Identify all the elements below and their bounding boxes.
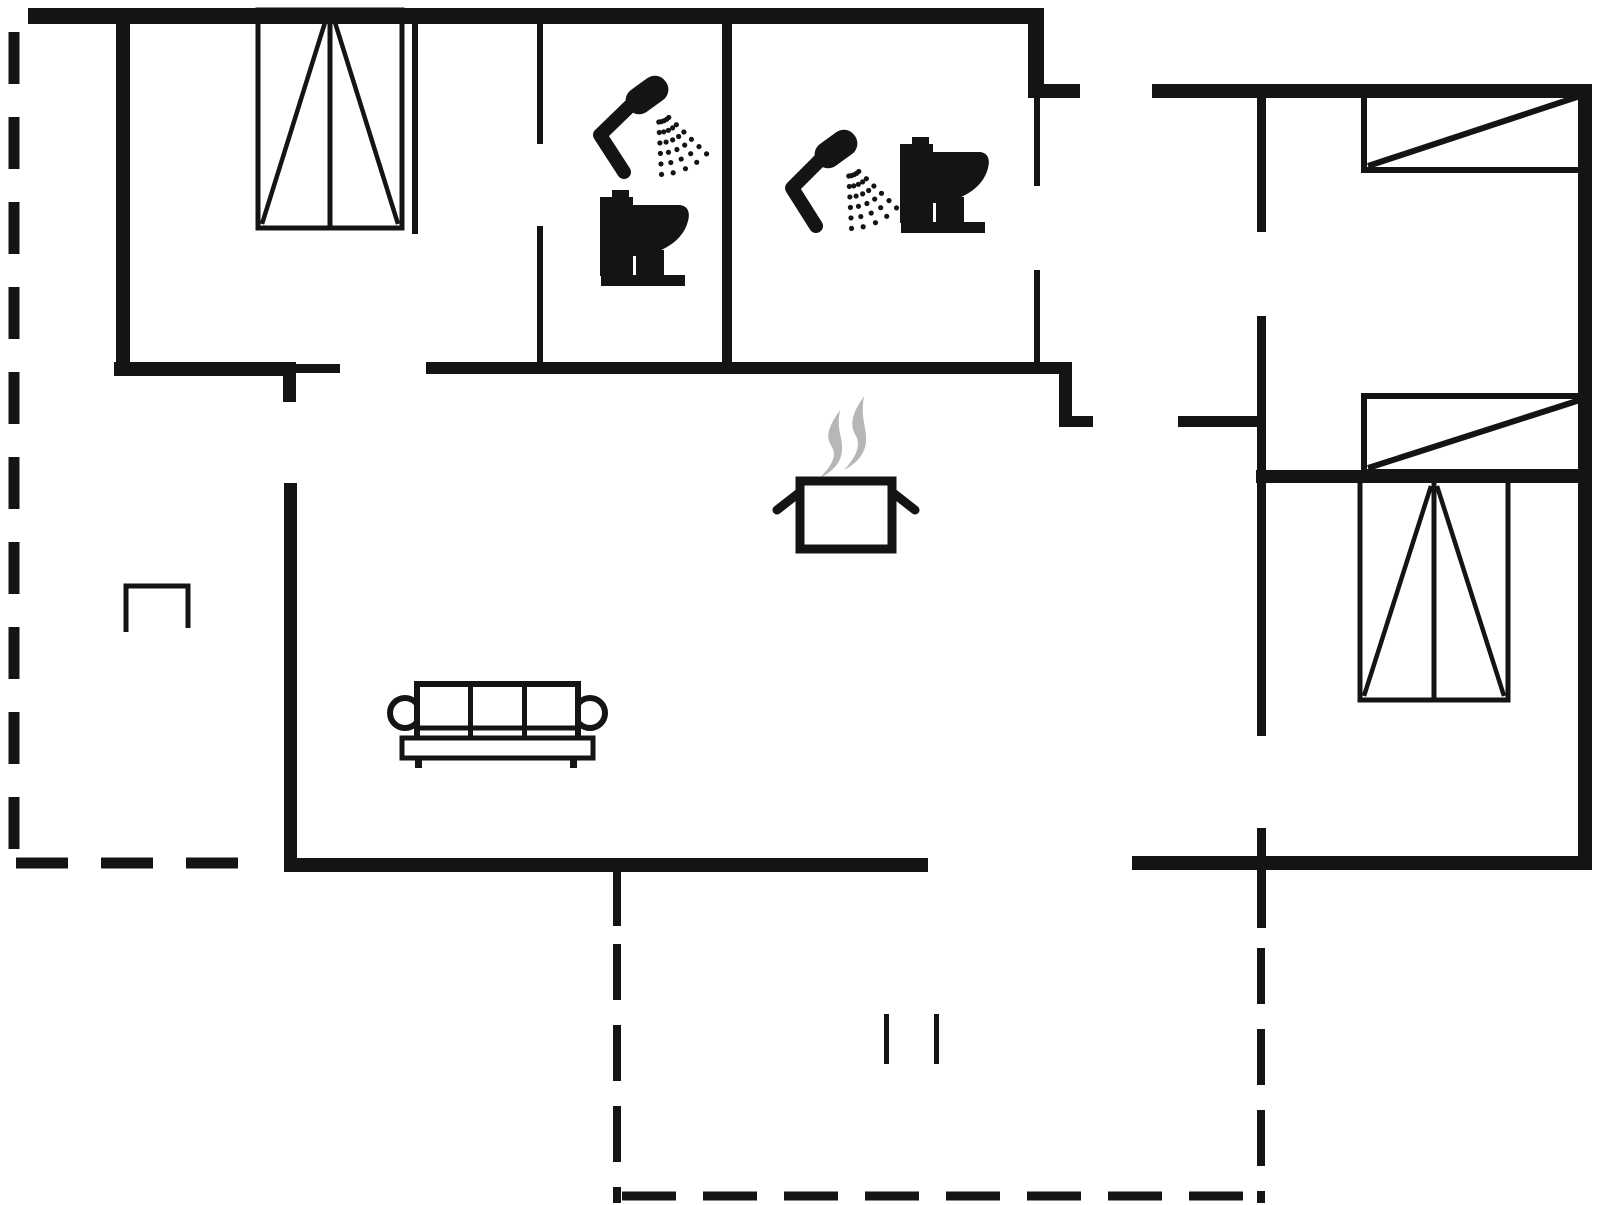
step-wall-jamb [1059,416,1093,427]
steam-icon [820,410,842,478]
shower-spray-dot [657,130,662,135]
shower-spray-dot [873,220,878,225]
door-mark [934,1014,939,1064]
shower-spray-dot [894,205,899,210]
shower-spray-dot [846,173,851,178]
floor-plan-canvas [0,0,1606,1205]
bathroom1-left-wall-lower [537,226,543,364]
bedroom1-right-wall [412,8,418,234]
hall-wall-upper [1257,92,1266,232]
toilet-base [901,222,985,233]
shower-spray-dot [853,193,858,198]
shower-spray-dot [848,215,853,220]
toilet-pedestal [636,250,664,278]
shower-spray-dot [884,214,889,219]
shower-spray-dot [861,224,866,229]
shower-spray-dot [864,201,869,206]
shower-spray-dot [849,226,854,231]
wardrobe-right-diagonal [333,16,398,224]
toilet-bathroom2-icon [900,137,989,233]
shower-spray-dot [871,183,876,188]
wardrobe-bedroom3-icon [1360,480,1508,700]
terrace-stub-wall [613,866,621,926]
shower-spray-dot [681,129,686,134]
living-bottom-wall [284,858,928,872]
shower-spray-dot [872,196,877,201]
wardrobe-left-diagonal [1364,486,1431,696]
shower-spray-dot [869,210,874,215]
shower-spray-dot [670,137,675,142]
shower-spray-dot [696,144,701,149]
bathroom-divider-wall [722,8,732,364]
shower-spray-dot [659,172,664,177]
shower-spray-dot [694,160,699,165]
shower-spray-dot [682,142,687,147]
toilet-tank [900,144,933,223]
sofa-leg [570,758,577,768]
shower-spray-dot [858,214,863,219]
side-table-icon [126,586,188,632]
entry-door-jamb [1028,84,1080,98]
hall-wall-middle [1257,316,1266,736]
shower-spray-dot [848,205,853,210]
bedroom1-bottom-wall [114,362,296,376]
shower-spray-dot [847,184,852,189]
pot-body [800,481,892,549]
shower-spray-dot [688,151,693,156]
shower-spray-dot [676,134,681,139]
toilet-tank [600,197,633,276]
hall-wall-lower [1257,828,1266,928]
shower-spray-dot [658,161,663,166]
toilet-bowl [933,152,989,203]
shower-bathroom1-icon [600,71,709,177]
wardrobe-left-diagonal [262,16,327,224]
wardrobes [258,10,1508,700]
right-wing-bottom-wall [1132,856,1592,870]
shower-spray-dot [679,156,684,161]
shower-spray-dot [666,150,671,155]
shower-spray-dot [683,166,688,171]
shower-spray-dot [847,194,852,199]
hall-door-jamb [1178,416,1264,427]
shower-spray-dot [878,205,883,210]
shower-spray-dot [668,160,673,165]
shower-spray-dot [689,137,694,142]
bathroom2-right-wall-upper [1034,96,1040,186]
stove-pot-icon [777,396,915,549]
shower-spray-dot [657,140,662,145]
shower-spray-dot [666,128,671,133]
top-exterior-wall [28,8,1044,24]
shower-spray-dot [856,182,861,187]
shower-bathroom2-icon [792,125,899,231]
floor-plan [0,0,1606,1205]
beds [1364,92,1584,472]
shower-spray-dot [879,191,884,196]
shower-spray-dot [856,204,861,209]
living-left-wall [284,483,297,872]
toilet-base [601,275,685,286]
shower-spray-dot [704,151,709,156]
shower-arm [792,157,823,226]
bed-top-right-icon [1364,92,1584,170]
shower-spray-dot [658,151,663,156]
sofa-seat [402,738,593,758]
steam-icon [844,396,866,470]
right-wing-top-wall [1152,84,1592,98]
shower-spray-dot [851,183,856,188]
right-wing-divider-wall [1256,470,1592,483]
corridor-bottom-wall [426,362,1072,374]
shower-arm [600,103,633,172]
left-exterior-wall [116,8,130,376]
shower-spray-dot [656,119,661,124]
shower-spray-dot [860,191,865,196]
sofa-back [417,684,578,740]
door-mark [884,1014,889,1064]
shower-spray-dot [663,139,668,144]
bedroom1-jamb-tick [296,364,340,373]
terrace-door-marks [884,1014,939,1064]
shower-spray-dot [661,129,666,134]
bathroom2-right-wall-lower [1034,270,1040,364]
wardrobe-bedroom1-icon [258,10,402,228]
toilet-bowl [633,205,689,256]
shower-spray-dot [886,198,891,203]
shower-spray-dot [671,170,676,175]
sofa-leg [415,758,422,768]
bed-mid-right-icon [1364,396,1584,472]
shower-spray-dot [674,147,679,152]
bathroom1-left-wall-upper [537,8,543,144]
toilet-bathroom1-icon [600,190,689,286]
wardrobe-right-diagonal [1437,486,1504,696]
walls [28,8,1592,928]
toilet-pedestal [936,197,964,225]
shower-spray-dot [866,188,871,193]
sofa-icon [390,684,605,768]
